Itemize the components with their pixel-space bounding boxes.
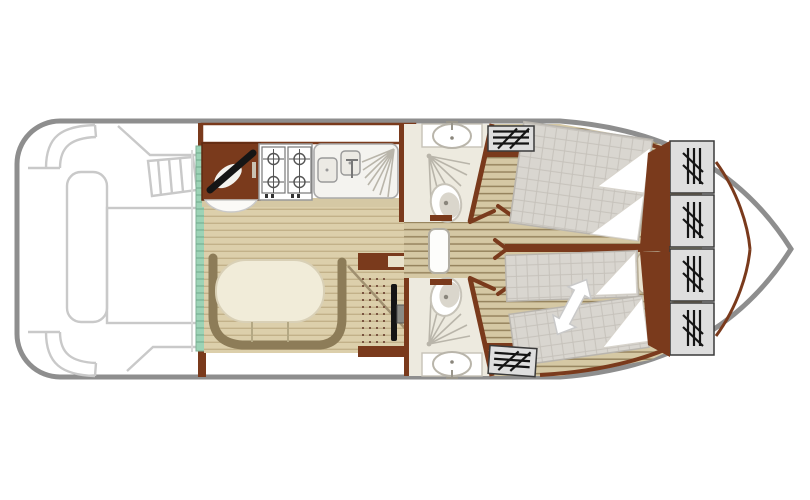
window-band	[202, 124, 415, 143]
wall-stub-bottom	[198, 350, 206, 377]
galley	[202, 143, 402, 212]
dinette-table	[216, 260, 324, 322]
saloon-bathroom-wall-bottom	[404, 278, 409, 376]
boat-floorplan	[0, 0, 810, 500]
cabinet-latch	[252, 162, 256, 178]
sink-unit-icon	[314, 144, 398, 198]
wardrobe-port-cabin	[488, 126, 534, 151]
door-frame-bottom	[430, 279, 452, 285]
saloon-bathroom-wall-top	[399, 124, 404, 222]
gas-hob-icon	[259, 144, 312, 200]
door-frame-top	[430, 215, 452, 221]
corridor-step	[429, 229, 449, 273]
floorplan-svg	[0, 0, 810, 500]
steering-wheel-icon	[391, 284, 397, 341]
wardrobe-starboard-cabin	[488, 345, 537, 376]
